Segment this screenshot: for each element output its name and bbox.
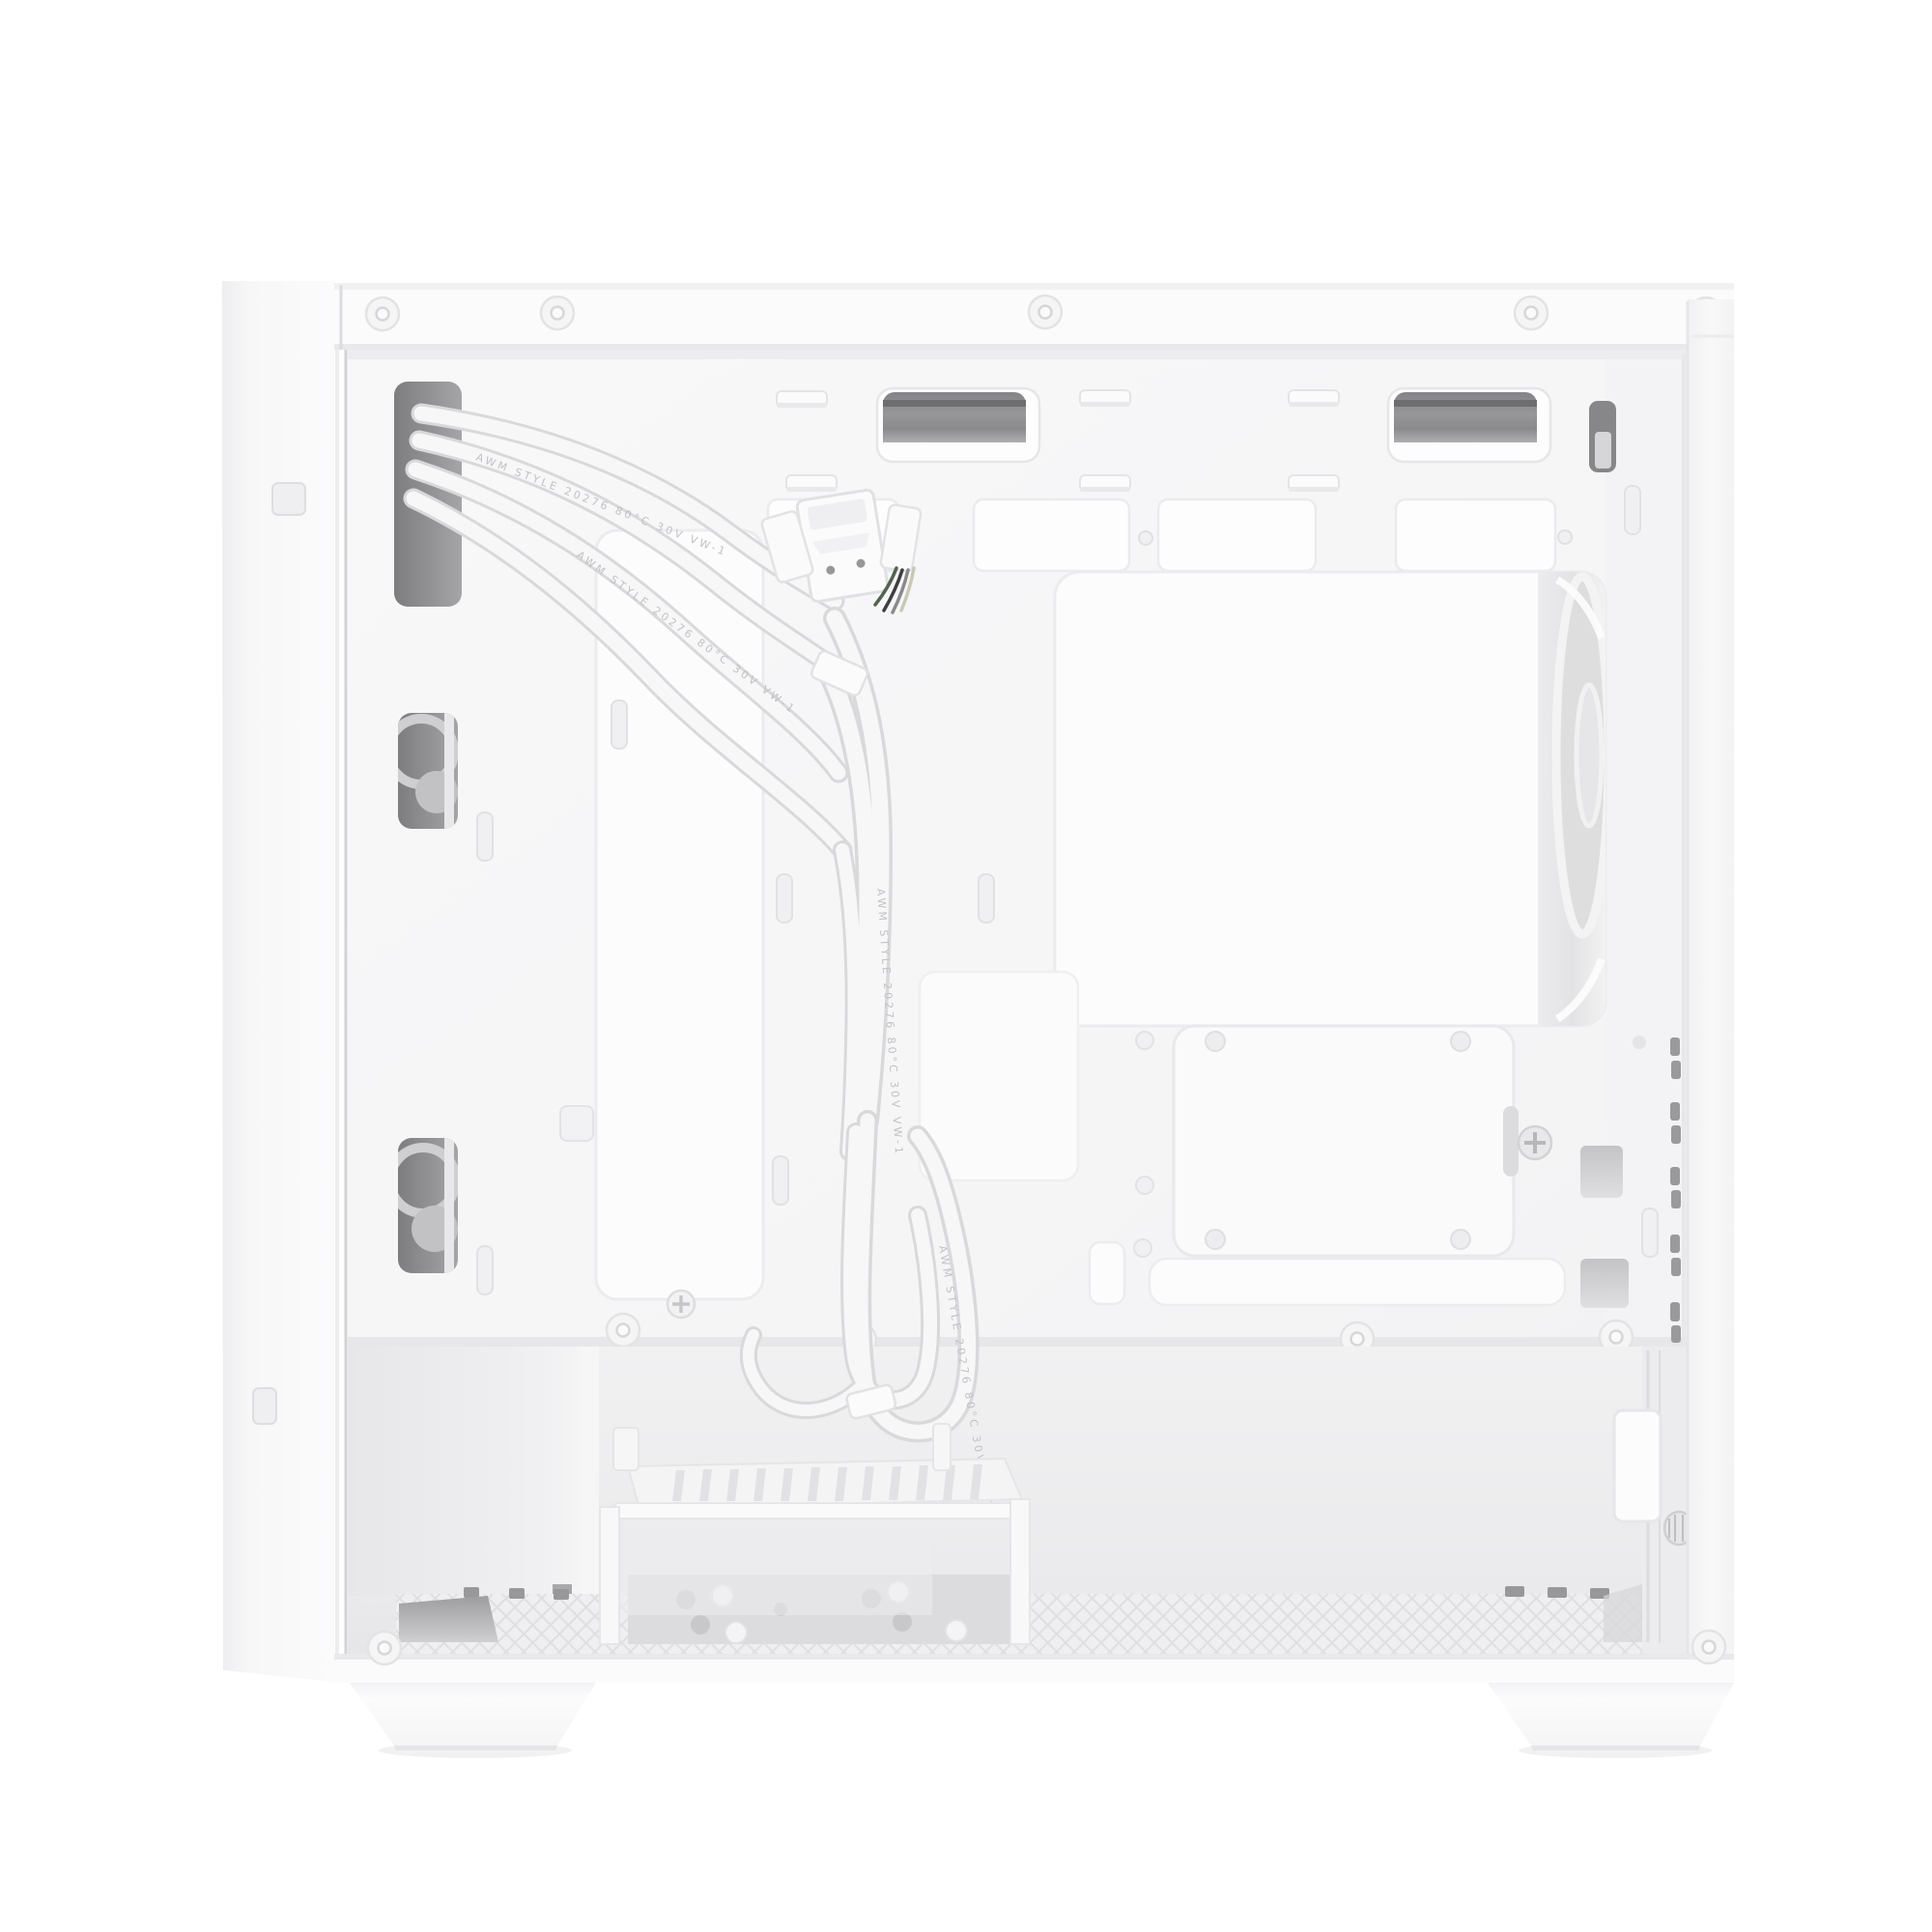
ssd-screw-hole — [1451, 1230, 1470, 1249]
rear-exhaust-fan — [1538, 572, 1608, 1026]
motherboard-tray — [348, 350, 1688, 1356]
rivet — [541, 297, 574, 329]
bottom-cable-slot — [1150, 1259, 1565, 1305]
product-photo: AWM STYLE 20276 80°C 30V VW-1 AWM STYLE … — [0, 0, 1932, 1932]
bottom-rail-rivet — [1692, 1631, 1725, 1663]
thumbscrew — [1519, 1126, 1551, 1159]
cage-tab-right — [933, 1424, 951, 1470]
rivet — [1515, 297, 1548, 329]
cage-right-wall — [1010, 1499, 1030, 1644]
bottom-rail-rivet — [368, 1632, 401, 1664]
ssd-screw-hole — [1206, 1032, 1225, 1051]
bottom-cable-slot-small — [1090, 1242, 1124, 1304]
fan-hub — [1577, 685, 1602, 826]
compartment-left-wall — [348, 1347, 599, 1596]
rivet — [1029, 296, 1062, 328]
top-rail-rivets — [366, 296, 1722, 330]
tray-recess-mid — [920, 972, 1078, 1180]
case-feet — [350, 1683, 1734, 1758]
rivet — [366, 298, 399, 330]
panel-clip-lower — [253, 1388, 276, 1424]
fp-connector-main — [796, 489, 889, 602]
vent-slot-small — [1589, 401, 1616, 472]
tray-rivet — [607, 1314, 639, 1347]
ssd-screw-hole — [1206, 1230, 1225, 1249]
right-edge-column — [1688, 299, 1734, 1674]
cpu-cutout — [1055, 572, 1608, 1026]
cage-left-wall — [600, 1507, 619, 1644]
ssd-mount-plate — [1174, 1026, 1551, 1256]
front-panel — [222, 281, 346, 1682]
cable-grommet-top-right — [1388, 388, 1550, 462]
rear-opening — [1580, 1146, 1623, 1198]
foot-pad — [1531, 1746, 1700, 1750]
tray-screw — [668, 1291, 695, 1318]
cable-grommet-top-center — [877, 388, 1039, 462]
foot-pad — [394, 1746, 557, 1750]
cage-tab-left — [613, 1428, 639, 1470]
floor-ramp — [399, 1596, 498, 1642]
cage-shelf — [628, 1459, 1022, 1509]
case-foot-left — [350, 1683, 596, 1746]
panel-clip-upper — [272, 483, 305, 515]
pc-case-illustration: AWM STYLE 20276 80°C 30V VW-1 AWM STYLE … — [0, 0, 1932, 1932]
ssd-plate-handle — [1503, 1106, 1519, 1177]
psu-bracket — [1614, 1410, 1661, 1521]
front-fan-slot-upper — [388, 713, 458, 829]
rear-opening — [1580, 1259, 1629, 1308]
cable-clip — [560, 1106, 593, 1141]
ssd-screw-hole — [1451, 1032, 1470, 1051]
front-fan-slot-lower — [390, 1138, 458, 1273]
top-rail — [334, 283, 1734, 350]
case-foot-right — [1488, 1683, 1734, 1746]
